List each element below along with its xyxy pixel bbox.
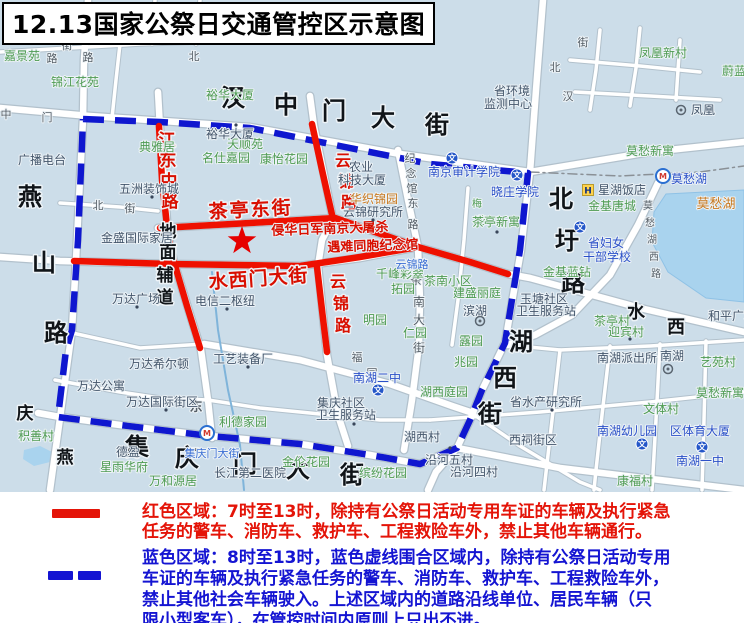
map-label: 金伦花园 [282, 454, 330, 469]
map-label: 裕华大厦 [206, 126, 254, 141]
map-label: 中 [1, 108, 12, 121]
landmark-icon-center [680, 109, 683, 112]
map-label: 科技大厦 [338, 173, 386, 187]
hotel-icon-glyph: H [584, 187, 592, 197]
map-label: 庆 [17, 403, 34, 424]
map-label: 湖 [647, 234, 657, 246]
map-label: 湖西庭园 [420, 384, 468, 399]
map-label: 晓庄学院 [491, 184, 539, 199]
map-label: 卫生服务站 [316, 407, 376, 422]
map-label: 迎宾村 [608, 324, 644, 339]
landmark-icon-center [479, 320, 482, 323]
map-label: 燕 [57, 447, 74, 468]
map-label: 集庆门大街 [185, 446, 240, 460]
landmark-icon-center [667, 368, 670, 371]
memorial-day-traffic-control-map: 汉中门大街燕山路集庆门大街北圩路湖西街水西庆燕东江东中路地面辅道云锦路云锦路茶亭… [0, 0, 744, 623]
map-label: 长江第二医院 [214, 466, 286, 480]
map-label: 万达希尔顿 [129, 356, 189, 371]
map-label: 东 [408, 197, 419, 210]
map-label: 梅 [472, 197, 482, 210]
map-label: 莫愁新寓 [626, 143, 674, 158]
map-label: 街 [424, 111, 449, 139]
map-label: 云锦研究所 [343, 204, 403, 219]
map-label: 露园 [459, 334, 483, 348]
map-label: 街 [477, 400, 502, 428]
school-icon-glyph: 文 [576, 222, 585, 233]
map-label: 云 [330, 272, 346, 291]
blue-dash-symbol [48, 571, 73, 580]
map-label: 西 [649, 252, 659, 263]
map-label: 利德家园 [219, 414, 267, 429]
poi-dot [135, 305, 138, 308]
map-label: 路 [47, 52, 58, 65]
map-label: 嘉景苑 [4, 49, 40, 63]
map-label: 南湖 [660, 348, 684, 363]
legend-blue-line-4: 限小型客车），在管控时间内原则上只出不进。 [142, 606, 742, 623]
map-label: 茶亭新寓 [472, 214, 520, 229]
map-label: 锦江花苑 [51, 74, 99, 89]
map-label: 中 [274, 91, 298, 119]
map-label: 湖 [509, 328, 533, 356]
map-label: 西祠街区 [509, 433, 557, 447]
map-label: 德盈 [116, 444, 140, 459]
map-label: 大 [371, 104, 395, 132]
map-label: 锦 [333, 294, 349, 313]
poi-dot [352, 422, 355, 425]
map-label: 莫愁湖 [671, 171, 707, 186]
map-label: 路 [408, 218, 419, 231]
school-icon-glyph: 文 [698, 442, 707, 453]
map-label: 华织锦园 [350, 192, 398, 206]
poi-dot [246, 365, 249, 368]
map-label: 莫愁新寓 [696, 385, 744, 400]
map-label: 遇难同胞纪念馆 [327, 236, 419, 255]
map-label: 南湖二中 [353, 370, 401, 385]
map-label: 街 [125, 201, 136, 215]
map-label: 北 [189, 50, 200, 63]
map-area: 汉中门大街燕山路集庆门大街北圩路湖西街水西庆燕东江东中路地面辅道云锦路云锦路茶亭… [0, 0, 744, 492]
map-label: 云锦路 [396, 257, 429, 271]
map-label: 路 [44, 319, 69, 347]
map-label: 裕华大厦 [206, 87, 254, 102]
map-label: 湖西村 [404, 429, 440, 444]
map-label: 茶南小区 [424, 273, 472, 288]
map-label: 文体村 [643, 401, 679, 416]
map-label: 康怡花园 [260, 151, 308, 166]
map-label: 沿河四村 [450, 465, 498, 479]
map-label: 纪 [405, 152, 416, 165]
map-label: 金基唐城 [588, 198, 636, 213]
map-label: 名仕嘉园 [202, 150, 250, 165]
map-label: 省水产研究所 [510, 394, 582, 409]
map-label: 万达公寓 [77, 378, 125, 393]
map-label: 莫 [643, 200, 653, 212]
map-label: 明园 [363, 313, 387, 327]
poi-dot [234, 123, 237, 126]
poi-dot [150, 195, 153, 198]
map-label: 监测中心 [484, 96, 532, 111]
map-label: 辅 [157, 265, 174, 286]
map-label: 卫生服务站 [516, 303, 576, 318]
map-label: 馆 [407, 181, 418, 195]
school-icon-glyph: 文 [638, 439, 647, 450]
map-label: 南湖派出所 [597, 350, 657, 365]
poi-dot [225, 307, 228, 310]
map-label: 燕 [18, 183, 42, 211]
map-label: 大 [413, 313, 425, 327]
page-title: 12.13国家公祭日交通管控区示意图 [2, 2, 435, 45]
blue-dash-symbol [78, 571, 101, 580]
map-label: 门 [42, 110, 53, 124]
map-label: 康福村 [617, 473, 653, 488]
school-icon-glyph: 文 [448, 153, 457, 164]
map-label: 面 [160, 243, 177, 263]
map-label: 北 [549, 185, 573, 213]
map-label: 南湖幼儿园 [597, 423, 657, 438]
map-label: 山 [32, 249, 56, 277]
map-label: 拓园 [391, 282, 415, 296]
map-label: 省妇女 [588, 235, 624, 250]
map-label: 蔚蓝 [722, 64, 744, 78]
map-label: 星雨华府 [100, 459, 148, 474]
map-label: 路 [83, 51, 94, 64]
map-label: 典雅居 [139, 139, 175, 154]
map-label: 念 [406, 166, 417, 180]
map-label: 凤凰新村 [639, 45, 687, 60]
map-label: 兆园 [454, 355, 478, 369]
map-label: 金基蓝钻 [543, 264, 591, 279]
map-label: 茶亭东街 [208, 196, 293, 223]
map-label: 工艺装备厂 [213, 352, 273, 366]
poi-dot [371, 218, 374, 221]
red-line-symbol [52, 509, 100, 518]
map-label: 莫愁湖 [696, 197, 735, 212]
map-label: 路 [651, 267, 661, 280]
map-label: 万达广场 [112, 292, 160, 306]
legend: 红色区域：7时至13时，除持有公祭日活动专用车证的车辆及执行紧急 任务的警车、消… [0, 492, 744, 623]
map-label: 西 [667, 317, 685, 338]
map-label: 福 [352, 350, 363, 364]
map-label: 北 [550, 61, 561, 74]
map-label: 汉 [563, 90, 574, 103]
map-label: 路 [335, 316, 352, 335]
school-icon-glyph: 文 [374, 385, 383, 396]
map-label: 积善村 [18, 428, 54, 443]
map-label: 西 [493, 364, 517, 392]
poi-dot [495, 230, 498, 233]
map-label: 南 [413, 294, 425, 309]
map-label: 愁 [645, 216, 655, 229]
map-label: 门 [322, 97, 346, 125]
metro-icon-glyph: M [659, 172, 667, 181]
map-label: 街 [413, 341, 425, 355]
map-label: 仁园 [403, 326, 427, 340]
map-canvas: 汉中门大街燕山路集庆门大街北圩路湖西街水西庆燕东江东中路地面辅道云锦路云锦路茶亭… [0, 0, 744, 492]
map-label: 北 [93, 199, 104, 212]
school-icon-glyph: 文 [513, 170, 522, 181]
map-label: 南湖一中 [676, 453, 724, 468]
map-label: 星湖饭店 [598, 182, 646, 197]
map-label: 省环境 [494, 83, 530, 98]
map-label: 干部学校 [583, 249, 631, 264]
map-label: 凤凰 [691, 103, 715, 117]
poi-dot [164, 408, 167, 411]
map-label: 万和源居 [149, 474, 197, 488]
map-label: 区体育大厦 [670, 423, 730, 438]
poi-dot [448, 446, 451, 449]
poi-dot [550, 408, 553, 411]
map-label: 万达国际街区 [126, 395, 198, 409]
poi-dot [628, 337, 631, 340]
map-label: 南京审计学院 [428, 164, 500, 179]
metro-icon-glyph: M [203, 429, 211, 438]
map-label: 和平广场 [708, 309, 744, 323]
map-label: 电信二枢纽 [195, 293, 255, 308]
map-label: 街 [578, 35, 589, 49]
map-label: 五洲装饰城 [119, 182, 179, 196]
map-label: 金盛国际家居 [101, 230, 173, 245]
map-label: 缤纷花园 [359, 465, 407, 480]
map-label: 艺苑村 [700, 355, 736, 369]
map-label: 广播电台 [18, 152, 66, 167]
map-label: 滨湖 [463, 303, 487, 318]
legend-red-line-2: 任务的警车、消防车、救护车、工程救险车外，禁止其他车辆通行。 [142, 517, 742, 542]
map-label: 农业 [349, 160, 373, 174]
